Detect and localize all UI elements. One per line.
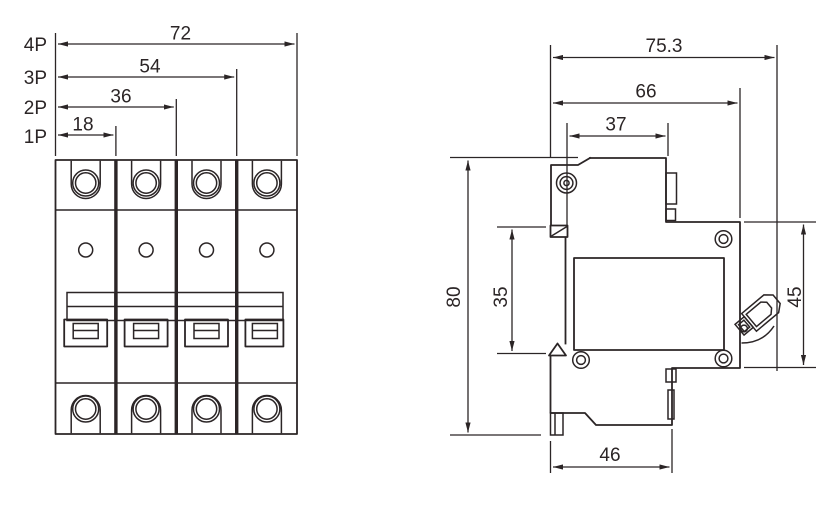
dim-base-width: 46 (599, 445, 620, 466)
side-outline (551, 158, 741, 425)
rivet-icon (715, 231, 732, 248)
busbar-shutter (666, 173, 677, 204)
dim-width-4p: 72 (170, 24, 191, 45)
side-body (549, 158, 784, 435)
dim-din-height: 35 (491, 286, 512, 307)
side-view: 75.3 66 37 80 35 45 46 (444, 36, 816, 473)
din-marker-bottom (549, 344, 566, 356)
drawing-canvas: 72 54 36 18 4P 3P 2P 1P (0, 0, 838, 505)
label-plate (574, 258, 724, 350)
dim-right-height: 45 (785, 286, 806, 307)
side-extension-lines (450, 45, 816, 473)
din-rail-latch (551, 413, 564, 435)
front-view: 72 54 36 18 4P 3P 2P 1P (24, 24, 297, 435)
dim-width-1p: 18 (72, 115, 93, 136)
dim-overall-height: 80 (444, 286, 465, 307)
pole-label-4p: 4P (24, 35, 47, 56)
front-body (56, 160, 298, 434)
pole-label-2p: 2P (24, 98, 47, 119)
dim-body-width: 66 (635, 82, 656, 103)
pole-label-1p: 1P (24, 127, 47, 148)
front-extension-lines (56, 33, 298, 156)
dim-width-2p: 36 (110, 87, 131, 108)
dim-width-3p: 54 (139, 57, 161, 78)
rivet-icon (715, 350, 732, 367)
dim-top-width: 37 (605, 115, 626, 136)
side-dimension-lines (468, 58, 804, 468)
rivet-icon (573, 352, 590, 369)
mcb-dimension-drawing: 72 54 36 18 4P 3P 2P 1P (0, 0, 838, 505)
pole-label-3p: 3P (24, 68, 47, 89)
dim-overall-width: 75.3 (646, 36, 683, 57)
